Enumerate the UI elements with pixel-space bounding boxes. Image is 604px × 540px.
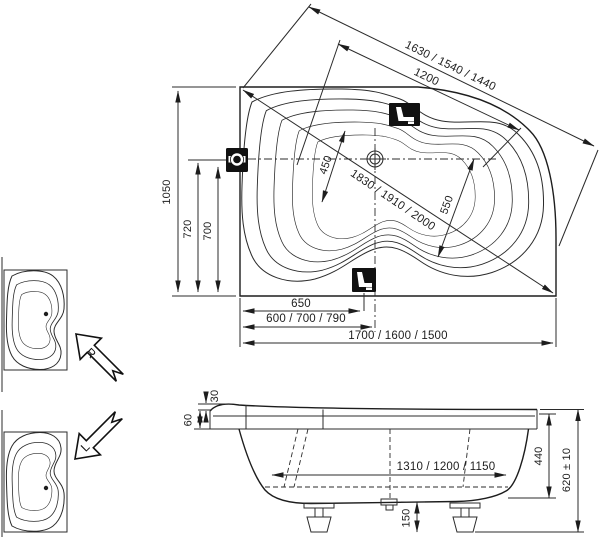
thumbnail-right-variant (4, 270, 67, 370)
backrest-icon-top (389, 103, 420, 126)
bathtub-dimension-drawing: 1050 720 700 650 600 / 700 / 790 1700 / … (0, 0, 604, 540)
dim-drain-offset: 600 / 700 / 790 (266, 313, 346, 325)
support-foot-left (304, 503, 334, 532)
side-rim-profile (210, 404, 537, 411)
dim-tap-axis-offset: 720 (182, 220, 194, 239)
dim-base-clearance: 150 (401, 509, 413, 528)
tap-icon (226, 148, 248, 172)
thumbnail-left-variant (4, 432, 67, 532)
dim-rim-rise: 30 (209, 390, 221, 403)
dim-inner-width-head: 450 (317, 154, 335, 176)
drain-trap-icon (381, 499, 397, 510)
dim-overall-height: 620 ± 10 (561, 448, 573, 492)
variant-left-arrow-icon (75, 412, 122, 459)
dim-rim-thickness: 60 (183, 414, 195, 427)
backrest-icon-bottom (352, 268, 376, 292)
dim-tap-hole-offset: 700 (202, 222, 214, 241)
plan-view: 1050 720 700 650 600 / 700 / 790 1700 / … (161, 4, 598, 347)
technical-drawing-canvas: 1050 720 700 650 600 / 700 / 790 1700 / … (0, 0, 604, 540)
dim-bottom-length: 1310 / 1200 / 1150 (397, 461, 496, 473)
dim-seat-offset: 650 (291, 298, 311, 310)
dim-inner-depth: 440 (533, 447, 545, 466)
support-foot-right (450, 503, 480, 532)
dim-inner-width-foot: 550 (438, 194, 456, 216)
dim-max-diagonal: 1830 / 1910 / 2000 (348, 168, 437, 234)
dim-length-options: 1700 / 1600 / 1500 (348, 330, 448, 342)
side-view: 30 60 1310 / 1200 / 1150 440 620 ± 10 15… (183, 390, 585, 532)
dim-overall-width: 1050 (161, 179, 173, 204)
variant-thumbnails: R L (2, 257, 123, 537)
variant-right-arrow-icon (76, 334, 123, 381)
drain-icon (364, 148, 386, 170)
